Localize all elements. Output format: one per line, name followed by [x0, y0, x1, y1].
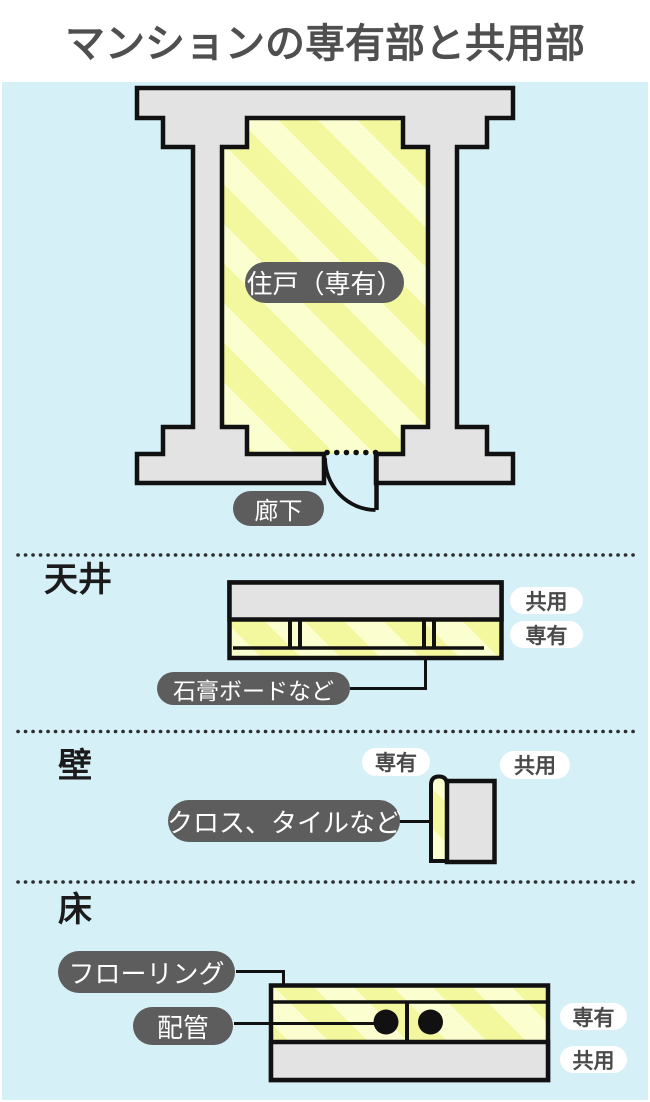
- floor-concrete-slab: [271, 1042, 548, 1080]
- floor-private-badge: 専有: [560, 1003, 627, 1030]
- wall-private-badge: 専有: [362, 748, 430, 776]
- pipe-right: [418, 1010, 443, 1035]
- floor-shared-badge: 共用: [560, 1046, 627, 1073]
- piping-callout-pill: 配管: [133, 1007, 233, 1045]
- cloth-tile-callout-pill: クロス、タイルなど: [168, 800, 400, 842]
- wall-section-heading: 壁: [58, 746, 92, 786]
- ceiling-concrete-slab: [230, 583, 502, 620]
- door-swing-arc: [325, 458, 376, 510]
- gypsum-callout-leader: [350, 656, 426, 689]
- wall-shared-badge: 共用: [500, 751, 570, 779]
- wall-cloth-layer: [431, 777, 447, 862]
- floor-section-heading: 床: [58, 890, 92, 930]
- flooring-callout-leader: [236, 972, 284, 985]
- infographic-root: マンションの専有部と共用部: [0, 0, 650, 1102]
- wall-concrete: [447, 781, 495, 862]
- flooring-callout-pill: フローリング: [58, 951, 235, 993]
- diagram-artwork: [0, 0, 650, 1102]
- corridor-label-pill: 廊下: [233, 491, 324, 526]
- ceiling-section-heading: 天井: [44, 560, 112, 600]
- ceiling-shared-badge: 共用: [510, 587, 583, 614]
- ceiling-private-badge: 専有: [510, 621, 583, 648]
- unit-private-label-pill: 住戸（専有）: [245, 262, 404, 303]
- gypsum-board-callout-pill: 石膏ボードなど: [157, 672, 350, 705]
